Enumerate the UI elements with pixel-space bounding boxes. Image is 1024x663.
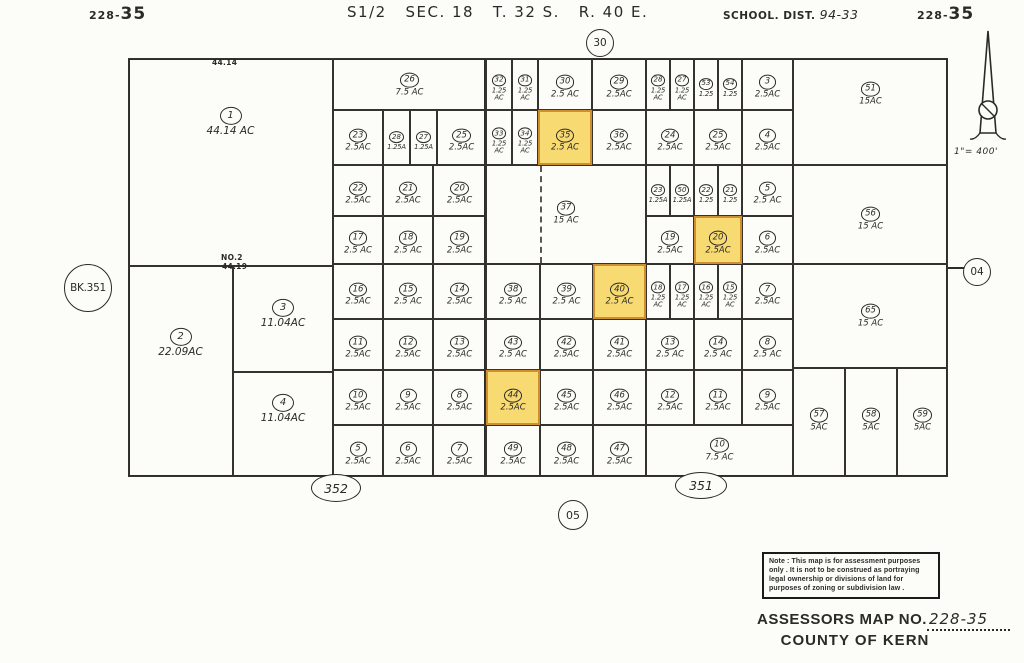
parcel-number: 8 [451,388,468,403]
parcel-49: 492.5AC [486,425,540,477]
parcel-27: 271.25 AC [670,58,694,110]
parcel-23: 231.25A [646,165,670,216]
parcel-acreage: 2.5AC [384,404,432,413]
parcel-number: 22 [699,184,714,196]
parcel-number: 7 [451,442,468,457]
parcel-label: 392.5 AC [541,276,592,307]
parcel-3: 32.5AC [742,58,793,110]
parcel-36: 362.5AC [592,110,646,165]
parcel-label: 492.5AC [487,436,539,467]
parcel-number: 15 [723,281,738,293]
parcel-38: 382.5 AC [486,264,540,319]
parcel-label: 222.09AC [129,324,232,358]
parcel-acreage: 1.25 [719,197,741,204]
parcel-46: 462.5AC [593,370,646,425]
adjacent-book-ref: BK.351 [64,264,112,312]
parcel-label: 242.5AC [647,122,693,153]
parcel-acreage: 2.5AC [696,246,740,255]
assessors-map-label: ASSESSORS MAP NO. [757,611,927,628]
parcel-number: 5 [759,181,776,196]
parcel-40: 402.5 AC [593,264,646,319]
parcel-acreage: 2.5 AC [384,246,432,255]
parcel-number: 9 [400,388,417,403]
parcel-label: 92.5AC [384,382,432,413]
parcel-number: 29 [610,75,629,90]
parcel-acreage: 2.5AC [593,90,645,99]
parcel-label: 382.5 AC [487,276,539,307]
parcel-acreage: 2.5 AC [334,246,382,255]
parcel-20: 202.5AC [433,165,486,216]
parcel-58: 585AC [845,368,897,477]
parcel-acreage: 2.5 AC [595,298,644,307]
parcel-39: 392.5 AC [540,264,593,319]
parcel-16: 162.5AC [333,264,383,319]
parcel-13: 132.5 AC [646,319,694,370]
parcel-6: 62.5AC [742,216,793,264]
parcel-label: 212.5AC [384,175,432,206]
parcel-15: 152.5 AC [383,264,433,319]
parcel-label: 144.14 AC [129,103,332,137]
parcel-5: 52.5 AC [742,165,793,216]
parcel-label: 221.25 [695,177,717,205]
parcel-acreage: 2.5AC [334,351,382,360]
parcel-label: 132.5AC [434,329,485,360]
parcel-number: 18 [651,281,666,293]
parcel-label: 112.5AC [334,329,382,360]
parcel-25: 252.5AC [437,110,486,165]
parcel-number: 16 [699,281,714,293]
parcel-label: 92.5AC [743,382,792,413]
parcel-number: 18 [399,231,418,246]
parcel-acreage: 2.5 AC [487,298,539,307]
parcel-acreage: 2.5AC [593,144,645,153]
parcel-number: 6 [400,442,417,457]
parcel-label: 5115AC [794,76,947,107]
parcel-number: 23 [349,128,368,143]
parcel-22: 222.5AC [333,165,383,216]
parcel-acreage: 1.25 AC [671,294,693,309]
parcel-15: 151.25 AC [718,264,742,319]
parcel-acreage: 2.5 AC [647,351,693,360]
parcel-acreage: 2.5AC [384,457,432,466]
parcel-number: 9 [759,388,776,403]
parcel-13: 132.5AC [433,319,486,370]
parcel-acreage: 2.5 AC [487,351,539,360]
parcel-acreage: 2.5AC [647,246,693,255]
parcel-acreage: 1.25 AC [487,140,511,155]
parcel-number: 17 [349,231,368,246]
parcel-number: 47 [610,442,629,457]
sheet-prefix: 228- [89,9,121,22]
dimension-label: 44.19 [222,262,247,271]
parcel-label: 482.5AC [541,436,592,467]
parcel-label: 107.5 AC [647,432,792,463]
parcel-label: 3715 AC [487,195,645,226]
parcel-acreage: 2.5AC [384,197,432,206]
parcel-label: 362.5AC [593,122,645,153]
parcel-number: 54 [723,78,738,90]
parcel-label: 252.5AC [438,122,485,153]
parcel-number: 12 [399,335,418,350]
parcel-number: 57 [810,408,829,423]
parcel-acreage: 2.5AC [438,144,485,153]
parcel-label: 152.5 AC [384,276,432,307]
parcel-label: 531.25 [695,70,717,98]
parcel-9: 92.5AC [383,370,433,425]
parcel-acreage: 2.5AC [743,90,792,99]
parcel-number: 6 [759,231,776,246]
parcel-label: 142.5 AC [695,329,741,360]
parcel-acreage: 2.5AC [334,197,382,206]
parcel-label: 432.5 AC [487,329,539,360]
parcel-31: 311.25 AC [512,58,538,110]
parcel-number: 12 [661,388,680,403]
parcel-54: 541.25 [718,58,742,110]
parcel-label: 32.5AC [743,69,792,100]
parcel-59: 595AC [897,368,948,477]
parcel-label: 211.25 [719,177,741,205]
parcel-acreage: 2.5AC [594,404,645,413]
parcel-label: 452.5AC [541,382,592,413]
parcel-number: 50 [675,184,690,196]
parcel-number: 56 [861,207,880,222]
dimension-label: 44.14 [212,58,237,67]
parcel-number: 11 [349,335,368,350]
assessors-map-title: ASSESSORS MAP NO.228-35 [757,609,1010,628]
parcel-acreage: 2.5AC [487,457,539,466]
parcel-acreage: 1.25A [647,197,669,204]
parcel-number: 4 [272,394,294,412]
parcel-acreage: 2.5AC [647,144,693,153]
parcel-33: 331.25 AC [486,110,512,165]
parcel-label: 462.5AC [594,382,645,413]
parcel-acreage: 1.25A [384,144,409,151]
parcel-acreage: 11.04AC [234,318,332,329]
parcel-number: 14 [709,335,728,350]
parcel-acreage: 1.25 AC [719,294,741,309]
section-line-extension [948,267,964,269]
parcel-acreage: 2.5AC [541,457,592,466]
parcel-label: 311.25 AC [513,66,537,101]
parcel-8: 82.5AC [433,370,486,425]
parcel-label: 321.25 AC [487,66,511,101]
sheet-number-top-left: 228-35 [89,4,146,24]
parcel-label: 142.5AC [434,276,485,307]
parcel-10: 102.5AC [333,370,383,425]
parcel-label: 172.5 AC [334,225,382,256]
parcel-acreage: 7.5 AC [647,453,792,462]
parcel-label: 331.25 AC [487,120,511,155]
parcel-number: 20 [709,231,728,246]
parcel-label: 171.25 AC [671,274,693,309]
parcel-number: 58 [862,408,881,423]
parcel-number: 21 [723,184,738,196]
parcel-number: 53 [699,78,714,90]
parcel-27: 271.25A [410,110,437,165]
parcel-acreage: 1.25 AC [647,294,669,309]
parcel-number: 15 [399,282,418,297]
parcel-acreage: 2.5AC [434,197,485,206]
parcel-acreage: 1.25 [695,197,717,204]
parcel-acreage: 5AC [794,423,844,432]
parcel-acreage: 2.5AC [434,246,485,255]
parcel-acreage: 2.5 AC [541,298,592,307]
parcel-50: 501.25A [670,165,694,216]
parcel-51: 5115AC [793,58,948,165]
parcel-acreage: 15 AC [794,319,947,328]
parcel-number: 11 [709,388,728,403]
parcel-label: 182.5 AC [384,225,432,256]
parcel-acreage: 11.04AC [234,413,332,424]
parcel-30: 302.5 AC [538,58,592,110]
parcel-17: 172.5 AC [333,216,383,264]
parcel-18: 181.25 AC [646,264,670,319]
parcel-43: 432.5 AC [486,319,540,370]
parcel-1: 144.14 AC [128,58,333,266]
parcel-label: 42.5AC [743,122,792,153]
parcel-number: 14 [450,282,469,297]
parcel-37: 3715 AC [486,165,646,264]
parcel-number: 34 [518,127,533,139]
parcel-9: 92.5AC [742,370,793,425]
parcel-7: 72.5AC [742,264,793,319]
parcel-label: 151.25 AC [719,274,741,309]
parcel-42: 422.5AC [540,319,593,370]
parcel-number: 45 [557,388,576,403]
parcel-number: 3 [272,299,294,317]
parcel-number: 25 [452,128,471,143]
parcel-acreage: 1.25 AC [647,87,669,102]
parcel-label: 271.25 AC [671,66,693,101]
parcel-label: 5615 AC [794,201,947,232]
school-district-value: 94-33 [820,7,859,22]
parcel-label: 311.04AC [234,295,332,329]
parcel-acreage: 7.5 AC [334,88,485,97]
parcel-acreage: 1.25 AC [695,294,717,309]
parcel-11: 112.5AC [333,319,383,370]
parcel-number: 51 [861,82,880,97]
parcel-41: 412.5AC [593,319,646,370]
parcel-label: 181.25 AC [647,274,669,309]
parcel-number: 37 [557,201,576,216]
parcel-acreage: 1.25A [411,144,436,151]
school-district: SCHOOL. DIST. 94-33 [723,7,858,22]
parcel-label: 585AC [846,402,896,433]
adjacent-page-ref-bottom: 05 [558,500,588,530]
parcel-acreage: 1.25 [695,91,717,98]
parcel-acreage: 2.5AC [743,298,792,307]
adjacent-page-ref-right: 04 [963,258,991,286]
adjacent-page-ref-top: 30 [586,29,614,57]
parcel-number: 19 [661,231,680,246]
parcel-acreage: 15 AC [794,222,947,231]
parcel-label: 422.5AC [541,329,592,360]
parcel-14: 142.5AC [433,264,486,319]
parcel-label: 292.5AC [593,69,645,100]
parcel-number: 27 [416,131,431,143]
parcel-10: 107.5 AC [646,425,793,477]
parcel-4: 42.5AC [742,110,793,165]
parcel-label: 102.5AC [334,382,382,413]
parcel-35: 352.5 AC [538,110,592,165]
parcel-acreage: 2.5AC [334,404,382,413]
parcel-2: 222.09AC [128,266,233,477]
parcel-label: 122.5AC [647,382,693,413]
parcel-acreage: 2.5AC [334,144,382,153]
parcel-number: 22 [349,181,368,196]
parcel-number: 5 [350,442,367,457]
parcel-label: 192.5AC [434,225,485,256]
parcel-label: 412.5AC [594,329,645,360]
parcel-acreage: 2.5AC [743,144,792,153]
parcel-acreage: 1.25 AC [513,140,537,155]
parcel-19: 192.5AC [646,216,694,264]
parcel-label: 281.25 AC [647,66,669,101]
parcel-11: 112.5AC [694,370,742,425]
parcel-number: 48 [557,442,576,457]
parcel-21: 211.25 [718,165,742,216]
sheet-suffix: 35 [949,4,975,24]
parcel-acreage: 1.25 [719,91,741,98]
school-district-label: SCHOOL. DIST. [723,10,815,22]
tract-label: NO.2 [221,253,243,262]
parcel-6: 62.5AC [383,425,433,477]
parcel-number: 35 [556,128,575,143]
parcel-44: 442.5AC [486,370,540,425]
parcel-label: 501.25A [671,177,693,205]
parcel-number: 19 [450,231,469,246]
parcel-acreage: 2.5AC [334,457,382,466]
parcel-acreage: 2.5AC [695,404,741,413]
parcel-label: 352.5 AC [540,122,590,153]
parcel-number: 33 [492,127,507,139]
parcel-acreage: 1.25 AC [487,87,511,102]
parcel-number: 40 [610,282,629,297]
parcel-number: 10 [349,388,368,403]
parcel-28: 281.25A [383,110,410,165]
parcel-number: 13 [661,335,680,350]
parcel-number: 41 [610,335,629,350]
parcel-label: 232.5AC [334,122,382,153]
parcel-label: 341.25 AC [513,120,537,155]
parcel-number: 16 [349,282,368,297]
parcel-acreage: 2.5AC [334,298,382,307]
parcel-number: 3 [759,75,776,90]
parcel-acreage: 2.5 AC [743,351,792,360]
parcel-5: 52.5AC [333,425,383,477]
parcel-acreage: 2.5AC [541,351,592,360]
county-name: COUNTY OF KERN [762,632,948,649]
parcel-label: 122.5AC [384,329,432,360]
parcel-12: 122.5AC [383,319,433,370]
parcel-number: 39 [557,282,576,297]
parcel-65: 6515 AC [793,264,948,368]
disclaimer-note: Note : This map is for assessment purpos… [762,552,940,599]
parcel-label: 112.5AC [695,382,741,413]
parcel-label: 267.5 AC [334,67,485,98]
parcel-47: 472.5AC [593,425,646,477]
parcel-number: 46 [610,388,629,403]
parcel-29: 292.5AC [592,58,646,110]
parcel-label: 52.5 AC [743,175,792,206]
parcel-23: 232.5AC [333,110,383,165]
parcel-26: 267.5 AC [333,58,486,110]
adjacent-page-ref-351: 351 [675,472,727,499]
parcel-16: 161.25 AC [694,264,718,319]
parcel-label: 252.5AC [695,122,741,153]
parcel-acreage: 2.5AC [488,404,538,413]
parcel-label: 192.5AC [647,225,693,256]
parcel-19: 192.5AC [433,216,486,264]
parcel-12: 122.5AC [646,370,694,425]
parcel-acreage: 2.5AC [434,351,485,360]
parcel-acreage: 2.5 AC [695,351,741,360]
parcel-number: 10 [710,438,729,453]
sheet-number-top-right: 228-35 [917,4,974,24]
parcel-number: 30 [556,75,575,90]
sheet-suffix: 35 [121,4,147,24]
parcel-label: 52.5AC [334,436,382,467]
parcel-acreage: 2.5AC [434,457,485,466]
parcel-acreage: 2.5AC [743,404,792,413]
parcel-acreage: 2.5 AC [384,298,432,307]
parcel-label: 72.5AC [743,276,792,307]
parcel-number: 23 [651,184,666,196]
parcel-number: 31 [518,74,533,86]
map-title: S1/2 SEC. 18 T. 32 S. R. 40 E. [347,3,648,21]
parcel-acreage: 15 AC [487,216,645,225]
parcel-number: 26 [400,73,419,88]
parcel-number: 8 [759,335,776,350]
parcel-acreage: 2.5AC [384,351,432,360]
assessors-map-number: 228-35 [927,610,1010,631]
parcel-22: 221.25 [694,165,718,216]
parcel-acreage: 2.5AC [743,246,792,255]
parcel-label: 271.25A [411,124,436,152]
parcel-label: 402.5 AC [595,276,644,307]
parcel-8: 82.5 AC [742,319,793,370]
parcel-label: 132.5 AC [647,329,693,360]
parcel-number: 7 [759,282,776,297]
parcel-label: 595AC [898,402,947,433]
parcel-4: 411.04AC [233,372,333,477]
parcel-number: 32 [492,74,507,86]
parcel-label: 442.5AC [488,382,538,413]
parcel-label: 202.5AC [434,175,485,206]
dashed-lot-line [540,166,542,263]
parcel-acreage: 2.5AC [434,298,485,307]
parcel-label: 222.5AC [334,175,382,206]
parcel-number: 44 [504,388,523,403]
parcel-acreage: 2.5AC [434,404,485,413]
parcel-7: 72.5AC [433,425,486,477]
parcel-14: 142.5 AC [694,319,742,370]
parcel-acreage: 2.5AC [695,144,741,153]
parcel-number: 4 [759,128,776,143]
parcel-label: 541.25 [719,70,741,98]
parcel-34: 341.25 AC [512,110,538,165]
parcel-acreage: 2.5AC [647,404,693,413]
parcel-number: 38 [504,282,523,297]
parcel-acreage: 2.5AC [541,404,592,413]
parcel-label: 82.5AC [434,382,485,413]
parcel-label: 82.5 AC [743,329,792,360]
parcel-label: 302.5 AC [539,69,591,100]
parcel-label: 162.5AC [334,276,382,307]
parcel-53: 531.25 [694,58,718,110]
parcel-20: 202.5AC [694,216,742,264]
parcel-label: 281.25A [384,124,409,152]
